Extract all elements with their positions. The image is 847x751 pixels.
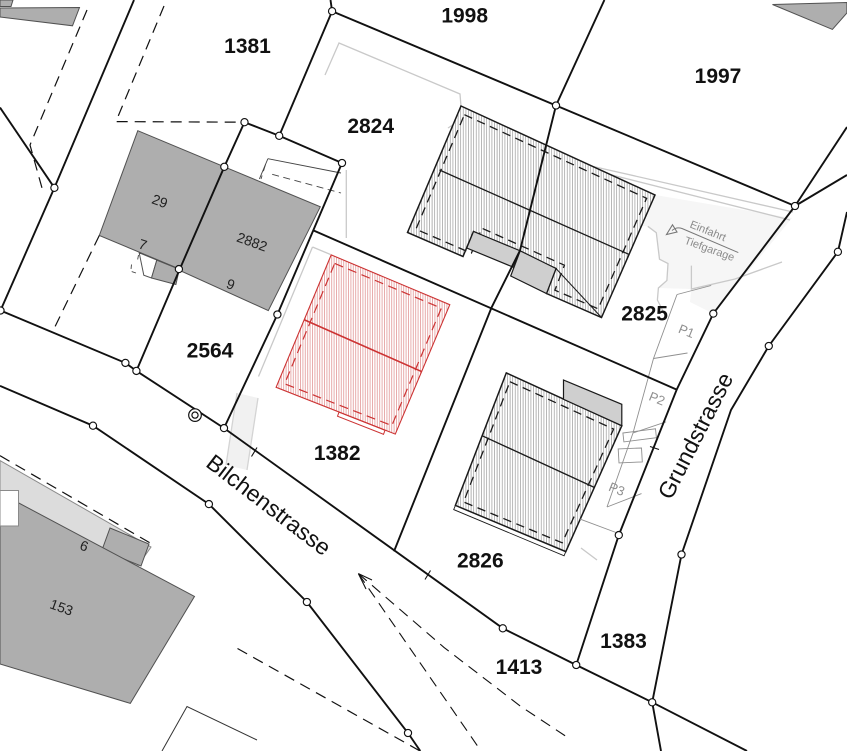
svg-text:1413: 1413 xyxy=(496,656,543,679)
svg-text:1381: 1381 xyxy=(224,35,271,58)
svg-text:1997: 1997 xyxy=(695,65,742,88)
svg-text:1998: 1998 xyxy=(441,4,488,27)
svg-text:2564: 2564 xyxy=(187,340,234,363)
svg-text:2825: 2825 xyxy=(621,302,668,325)
svg-text:1382: 1382 xyxy=(314,442,361,465)
svg-text:1383: 1383 xyxy=(600,630,647,653)
svg-text:2824: 2824 xyxy=(347,115,394,138)
svg-text:2826: 2826 xyxy=(457,550,504,573)
